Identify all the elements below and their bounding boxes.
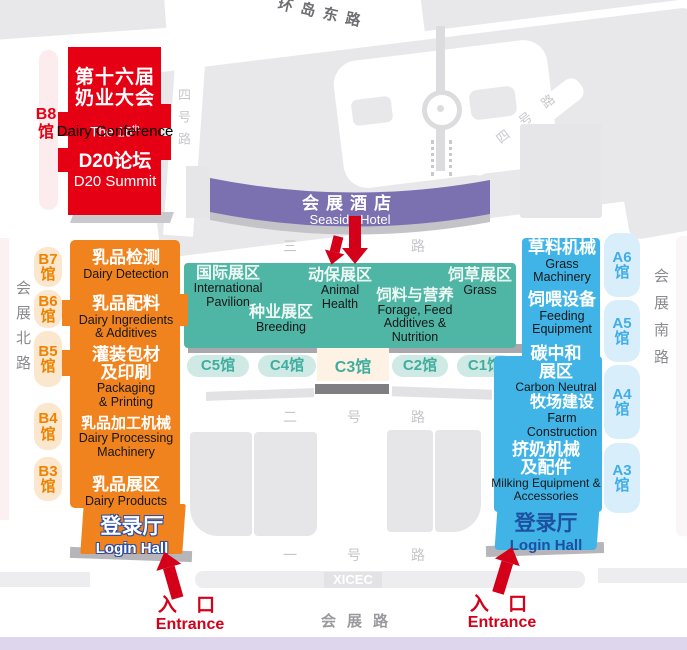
hall-pill-a5: A5 馆 bbox=[604, 300, 640, 362]
road-label-no4-west: 四号路 bbox=[174, 88, 193, 154]
west-login-zh: 登录厅 bbox=[78, 510, 186, 540]
conference-title-zh-2: 奶业大会 bbox=[56, 89, 174, 109]
west-section-zh: 乳品配料 bbox=[70, 295, 182, 313]
zone-forage-zh: 饲料与营养 bbox=[370, 288, 460, 304]
west-section-packaging: 灌装包材 及印刷 Packaging & Printing bbox=[70, 346, 182, 409]
hall-pill-c4: C4馆 bbox=[258, 355, 316, 377]
hall-pill-c5: C5馆 bbox=[187, 355, 249, 377]
south-boundary-strip bbox=[0, 637, 687, 650]
entrance-west-zh: 入 口 bbox=[150, 596, 230, 616]
xicec-label: XICEC bbox=[333, 573, 373, 587]
hall-pill-c2: C2馆 bbox=[392, 355, 448, 377]
zone-breeding-zh: 种业展区 bbox=[238, 305, 324, 321]
hall-pill-a4: A4 馆 bbox=[604, 365, 640, 439]
west-edge-strip bbox=[0, 238, 9, 520]
east-section-zh: 饲喂设备 bbox=[520, 291, 604, 309]
building-block bbox=[190, 432, 252, 536]
zone-forage: 饲料与营养 Forage, Feed Additives & Nutrition bbox=[370, 288, 460, 344]
entrance-west-en: Entrance bbox=[150, 617, 230, 634]
east-section-carbon-neutral: 碳中和 展区 Carbon Neutral bbox=[500, 345, 612, 394]
hall-pill-b7: B7 馆 bbox=[34, 247, 62, 287]
plaza-lawn bbox=[468, 85, 517, 120]
east-section-en: Carbon Neutral bbox=[500, 381, 612, 394]
park-area bbox=[0, 0, 166, 40]
west-section-en: Dairy Products bbox=[70, 495, 182, 509]
summit-title-zh: D20论坛 bbox=[56, 152, 174, 172]
west-section-en: Dairy Processing Machinery bbox=[68, 432, 184, 459]
hall-pill-b5: B5 馆 bbox=[34, 331, 62, 387]
entrance-east-en: Entrance bbox=[462, 615, 542, 632]
west-section-processing-machinery: 乳品加工机械 Dairy Processing Machinery bbox=[68, 416, 184, 459]
plaza-lawn bbox=[351, 96, 394, 127]
apron bbox=[392, 386, 492, 399]
building-block bbox=[387, 430, 433, 532]
west-section-zh: 乳品加工机械 bbox=[68, 416, 184, 431]
hall-pill-a3: A3 馆 bbox=[604, 443, 640, 513]
apron bbox=[206, 388, 314, 401]
west-section-en: Dairy Ingredients & Additives bbox=[70, 314, 182, 341]
east-section-en: Feeding Equipment bbox=[520, 310, 604, 337]
east-section-en: Farm Construction bbox=[520, 412, 604, 439]
building-block bbox=[254, 432, 317, 536]
road-label-east-side: 会展南路 bbox=[650, 268, 671, 376]
road-strip bbox=[598, 568, 687, 583]
east-section-en: Milking Equipment & Accessories bbox=[488, 477, 604, 503]
road-label-south: 会展路 bbox=[320, 614, 400, 630]
west-section-zh: 灌装包材 及印刷 bbox=[70, 346, 182, 381]
west-section-zh: 乳品检测 bbox=[70, 249, 182, 267]
east-section-milking-equipment: 挤奶机械 及配件 Milking Equipment & Accessories bbox=[488, 441, 604, 503]
west-section-dairy-products: 乳品展区 Dairy Products bbox=[70, 476, 182, 508]
road-strip bbox=[195, 571, 585, 588]
west-section-dairy-detection: 乳品检测 Dairy Detection bbox=[70, 249, 182, 281]
hotel-name-zh: 会展酒店 bbox=[235, 195, 465, 213]
east-section-zh: 碳中和 展区 bbox=[500, 345, 612, 380]
hall-pill-b6: B6 馆 bbox=[34, 290, 62, 328]
hall-block-c3: C3馆 bbox=[317, 348, 389, 381]
hall-pill-b4: B4 馆 bbox=[34, 403, 62, 450]
entrance-east-zh: 入 口 bbox=[462, 595, 542, 615]
road-strip bbox=[0, 572, 90, 587]
road-label-no2: 二号路 bbox=[283, 407, 475, 427]
zone-breeding-en: Breeding bbox=[238, 321, 324, 335]
east-section-zh: 牧场建设 bbox=[520, 395, 604, 411]
building-block bbox=[435, 430, 481, 532]
west-section-zh: 乳品展区 bbox=[70, 476, 182, 494]
zone-animal-health-zh: 动保展区 bbox=[300, 268, 380, 284]
east-section-feeding-equipment: 饲喂设备 Feeding Equipment bbox=[520, 291, 604, 337]
east-section-zh: 草料机械 bbox=[520, 239, 604, 257]
zone-international-zh: 国际展区 bbox=[186, 266, 270, 282]
building-block bbox=[520, 124, 602, 218]
east-section-farm-construction: 牧场建设 Farm Construction bbox=[520, 395, 604, 439]
east-login-zh: 登录厅 bbox=[494, 507, 598, 537]
hall-pill-b3: B3 馆 bbox=[34, 457, 62, 501]
east-section-grass-machinery: 草料机械 Grass Machinery bbox=[520, 239, 604, 285]
summit-title-en: D20 Summit bbox=[56, 174, 174, 190]
conference-title-zh-1: 第十六届 bbox=[56, 68, 174, 88]
c3-back-block bbox=[315, 384, 389, 394]
zone-breeding: 种业展区 Breeding bbox=[238, 305, 324, 335]
arrow-shaft bbox=[492, 561, 513, 595]
conference-title-en-2: Dairy Conference bbox=[47, 124, 183, 140]
road-label-west-side: 会展北路 bbox=[12, 280, 33, 380]
down-arrow-large bbox=[342, 216, 368, 264]
zone-international: 国际展区 International Pavilion bbox=[186, 266, 270, 309]
west-section-en: Packaging & Printing bbox=[70, 382, 182, 409]
road-label-north: 环岛东路 bbox=[258, 0, 388, 35]
east-section-en: Grass Machinery bbox=[520, 258, 604, 285]
west-section-en: Dairy Detection bbox=[70, 268, 182, 282]
west-section-dairy-ingredients: 乳品配料 Dairy Ingredients & Additives bbox=[70, 295, 182, 341]
zone-forage-en: Forage, Feed Additives & Nutrition bbox=[370, 304, 460, 345]
road-label-no1: 一号路 bbox=[283, 545, 475, 565]
east-section-zh: 挤奶机械 及配件 bbox=[488, 441, 604, 476]
zone-grass-zh: 饲草展区 bbox=[442, 268, 518, 284]
east-edge-strip bbox=[676, 236, 687, 536]
venue-map: XICEC 环岛东路 四号路 四 号 路 三号路 二号路 一号路 会展北路 会展… bbox=[0, 0, 687, 650]
arrow-head bbox=[342, 248, 368, 264]
xicec-badge: XICEC bbox=[324, 572, 382, 588]
arrow-shaft bbox=[349, 216, 361, 248]
hall-pill-a6: A6 馆 bbox=[604, 233, 640, 297]
fountain-center bbox=[437, 105, 444, 112]
